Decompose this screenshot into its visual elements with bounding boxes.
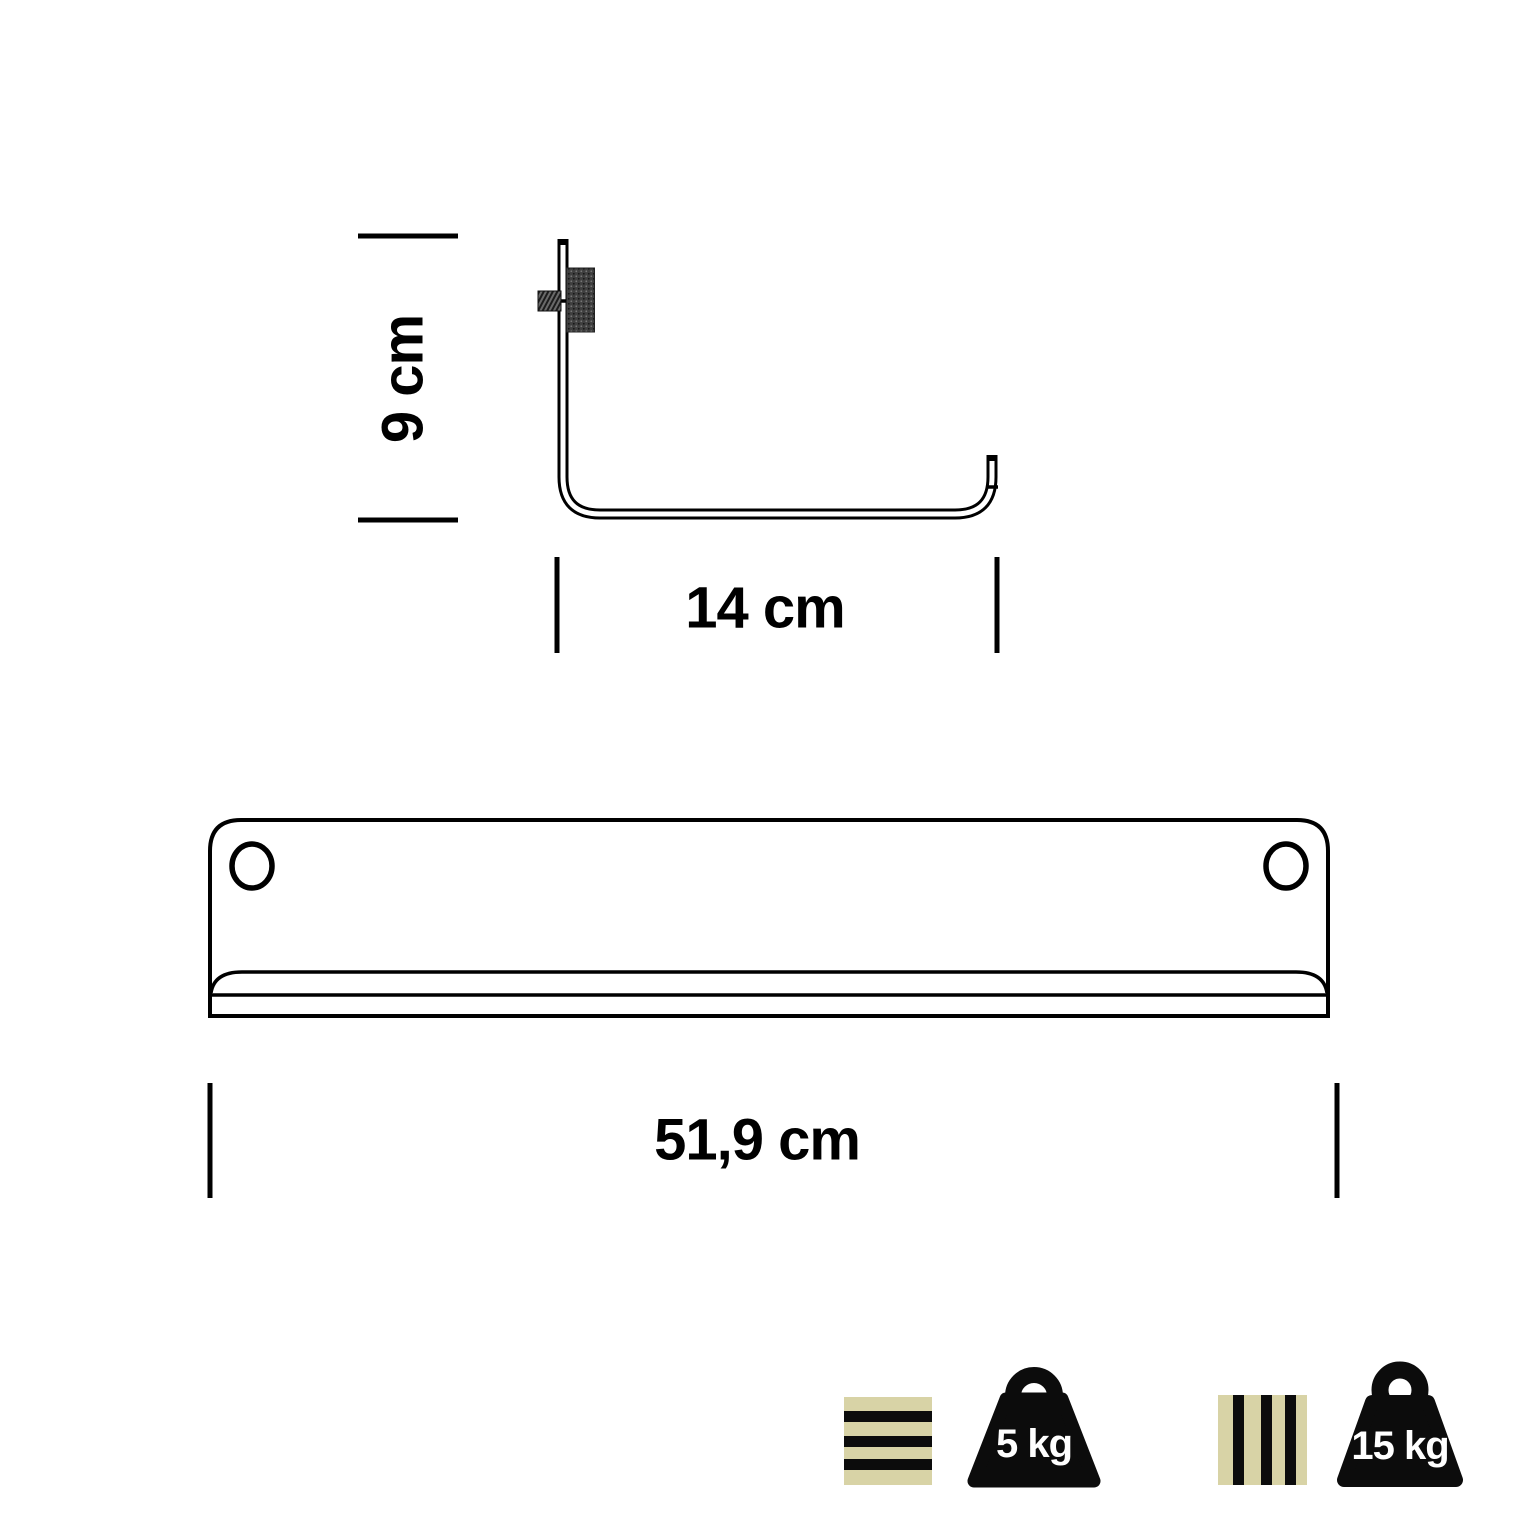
bracket-side-view: 9 cm 14 cm xyxy=(358,236,998,653)
shelf-outline xyxy=(210,820,1328,1016)
slat-stripe xyxy=(1261,1395,1272,1485)
height-dimension-label: 9 cm xyxy=(371,315,436,443)
horizontal-slats-capacity: 5 kg xyxy=(844,1375,1094,1485)
width-dimension-label: 51,9 cm xyxy=(654,1108,860,1173)
thumbscrew-thread xyxy=(538,291,561,311)
horizontal-slats-icon xyxy=(844,1397,932,1485)
depth-dimension: 14 cm xyxy=(557,557,997,653)
shelf-front-view: 51,9 cm xyxy=(210,820,1337,1198)
weight-5kg-label: 5 kg xyxy=(996,1422,1072,1466)
height-dimension: 9 cm xyxy=(358,236,458,520)
thumbscrew-knurled-head xyxy=(567,268,595,332)
slat-stripe xyxy=(1233,1395,1244,1485)
slat-stripe xyxy=(844,1411,932,1422)
diagram-canvas: 9 cm 14 cm 51,9 cm xyxy=(0,0,1536,1536)
slat-stripe xyxy=(844,1459,932,1470)
slat-stripe xyxy=(844,1436,932,1447)
bracket-outline-outer xyxy=(563,239,992,514)
mounting-hole-right xyxy=(1266,844,1306,888)
slat-stripe xyxy=(1285,1395,1296,1485)
product-dimensions-diagram: 9 cm 14 cm 51,9 cm xyxy=(0,0,1536,1536)
bracket-outline-inner xyxy=(563,245,992,514)
mounting-hole-left xyxy=(232,844,272,888)
width-dimension: 51,9 cm xyxy=(210,1083,1337,1198)
depth-dimension-label: 14 cm xyxy=(685,576,844,641)
thumbscrew-icon xyxy=(538,268,595,332)
weight-15kg-label: 15 kg xyxy=(1351,1424,1448,1468)
vertical-slats-capacity: 15 kg xyxy=(1218,1370,1456,1485)
weight-5kg-icon: 5 kg xyxy=(974,1375,1094,1481)
weight-15kg-icon: 15 kg xyxy=(1344,1370,1456,1480)
load-capacity-legend: 5 kg 15 kg xyxy=(844,1370,1456,1485)
vertical-slats-icon xyxy=(1218,1395,1307,1485)
